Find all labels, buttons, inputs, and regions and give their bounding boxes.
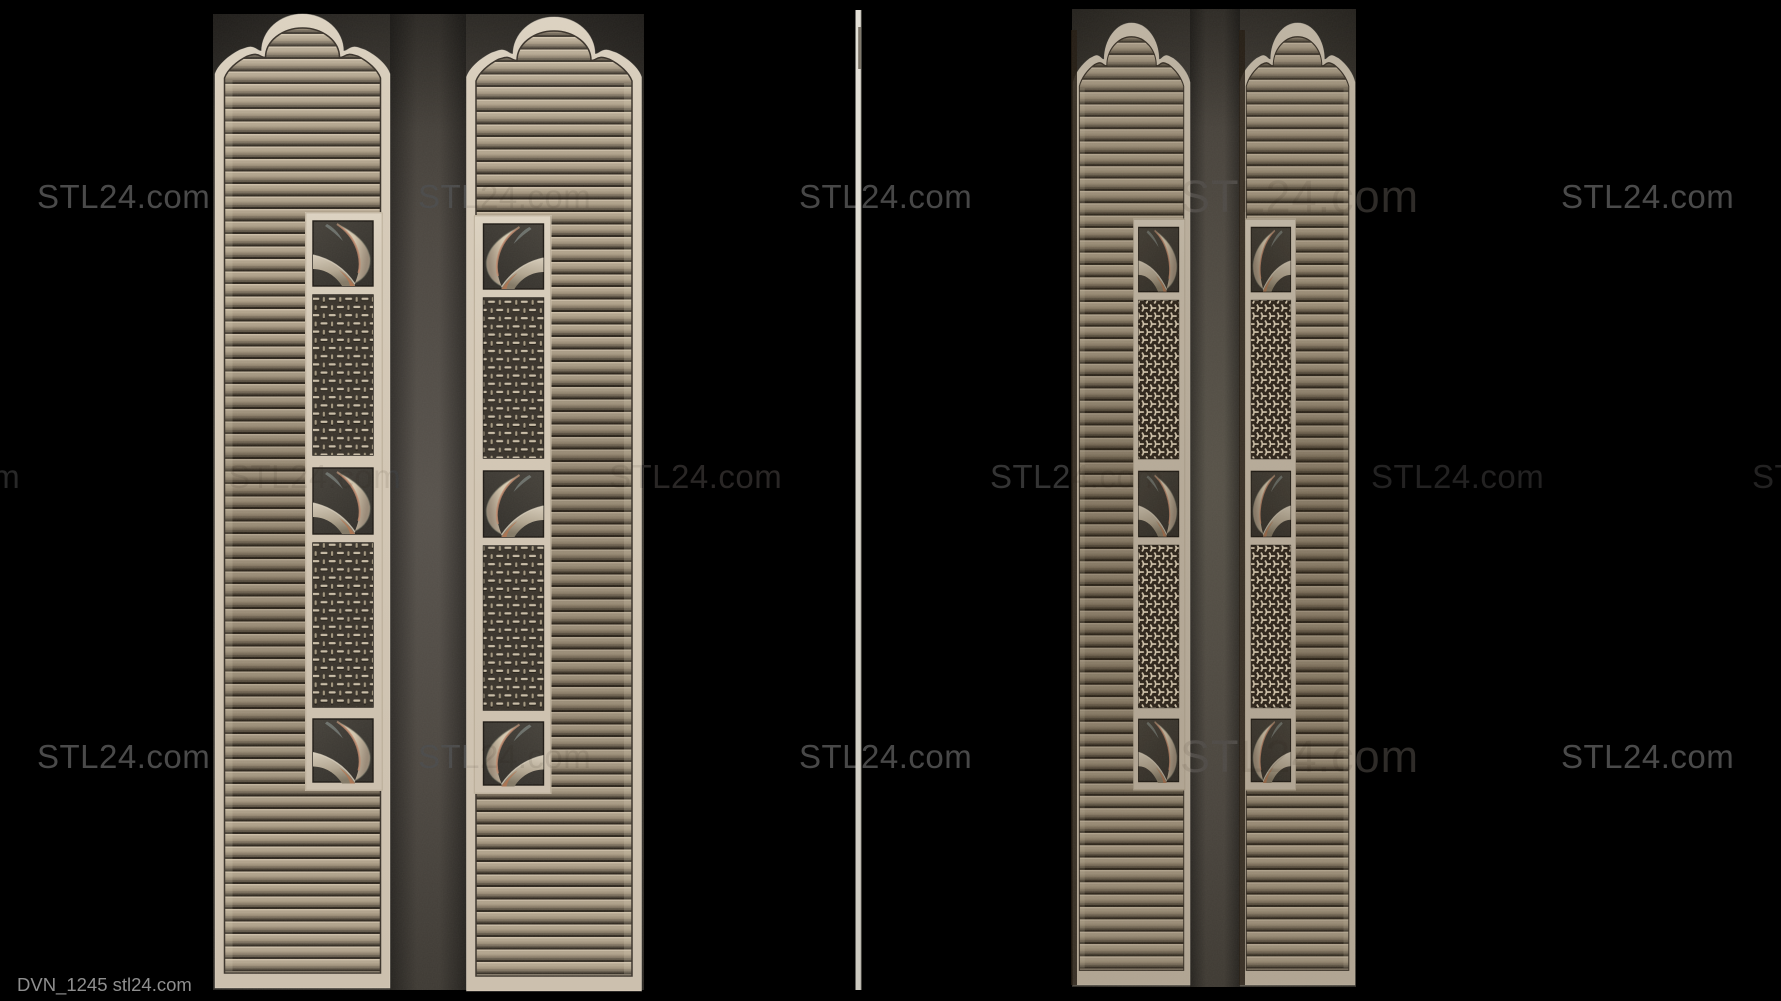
svg-text:DVN_1245 stl24.com: DVN_1245 stl24.com xyxy=(17,974,192,996)
svg-text:STL24.com: STL24.com xyxy=(37,738,210,775)
svg-text:STL24.com: STL24.com xyxy=(0,458,20,495)
svg-text:STL24.com: STL24.com xyxy=(799,738,972,775)
svg-text:STL24.com: STL24.com xyxy=(1752,458,1781,495)
svg-text:STL24.com: STL24.com xyxy=(1371,458,1544,495)
svg-text:STL24.com: STL24.com xyxy=(1561,178,1734,215)
svg-text:STL24.com: STL24.com xyxy=(799,178,972,215)
svg-text:STL24.com: STL24.com xyxy=(1561,738,1734,775)
svg-text:STL24.com: STL24.com xyxy=(37,178,210,215)
